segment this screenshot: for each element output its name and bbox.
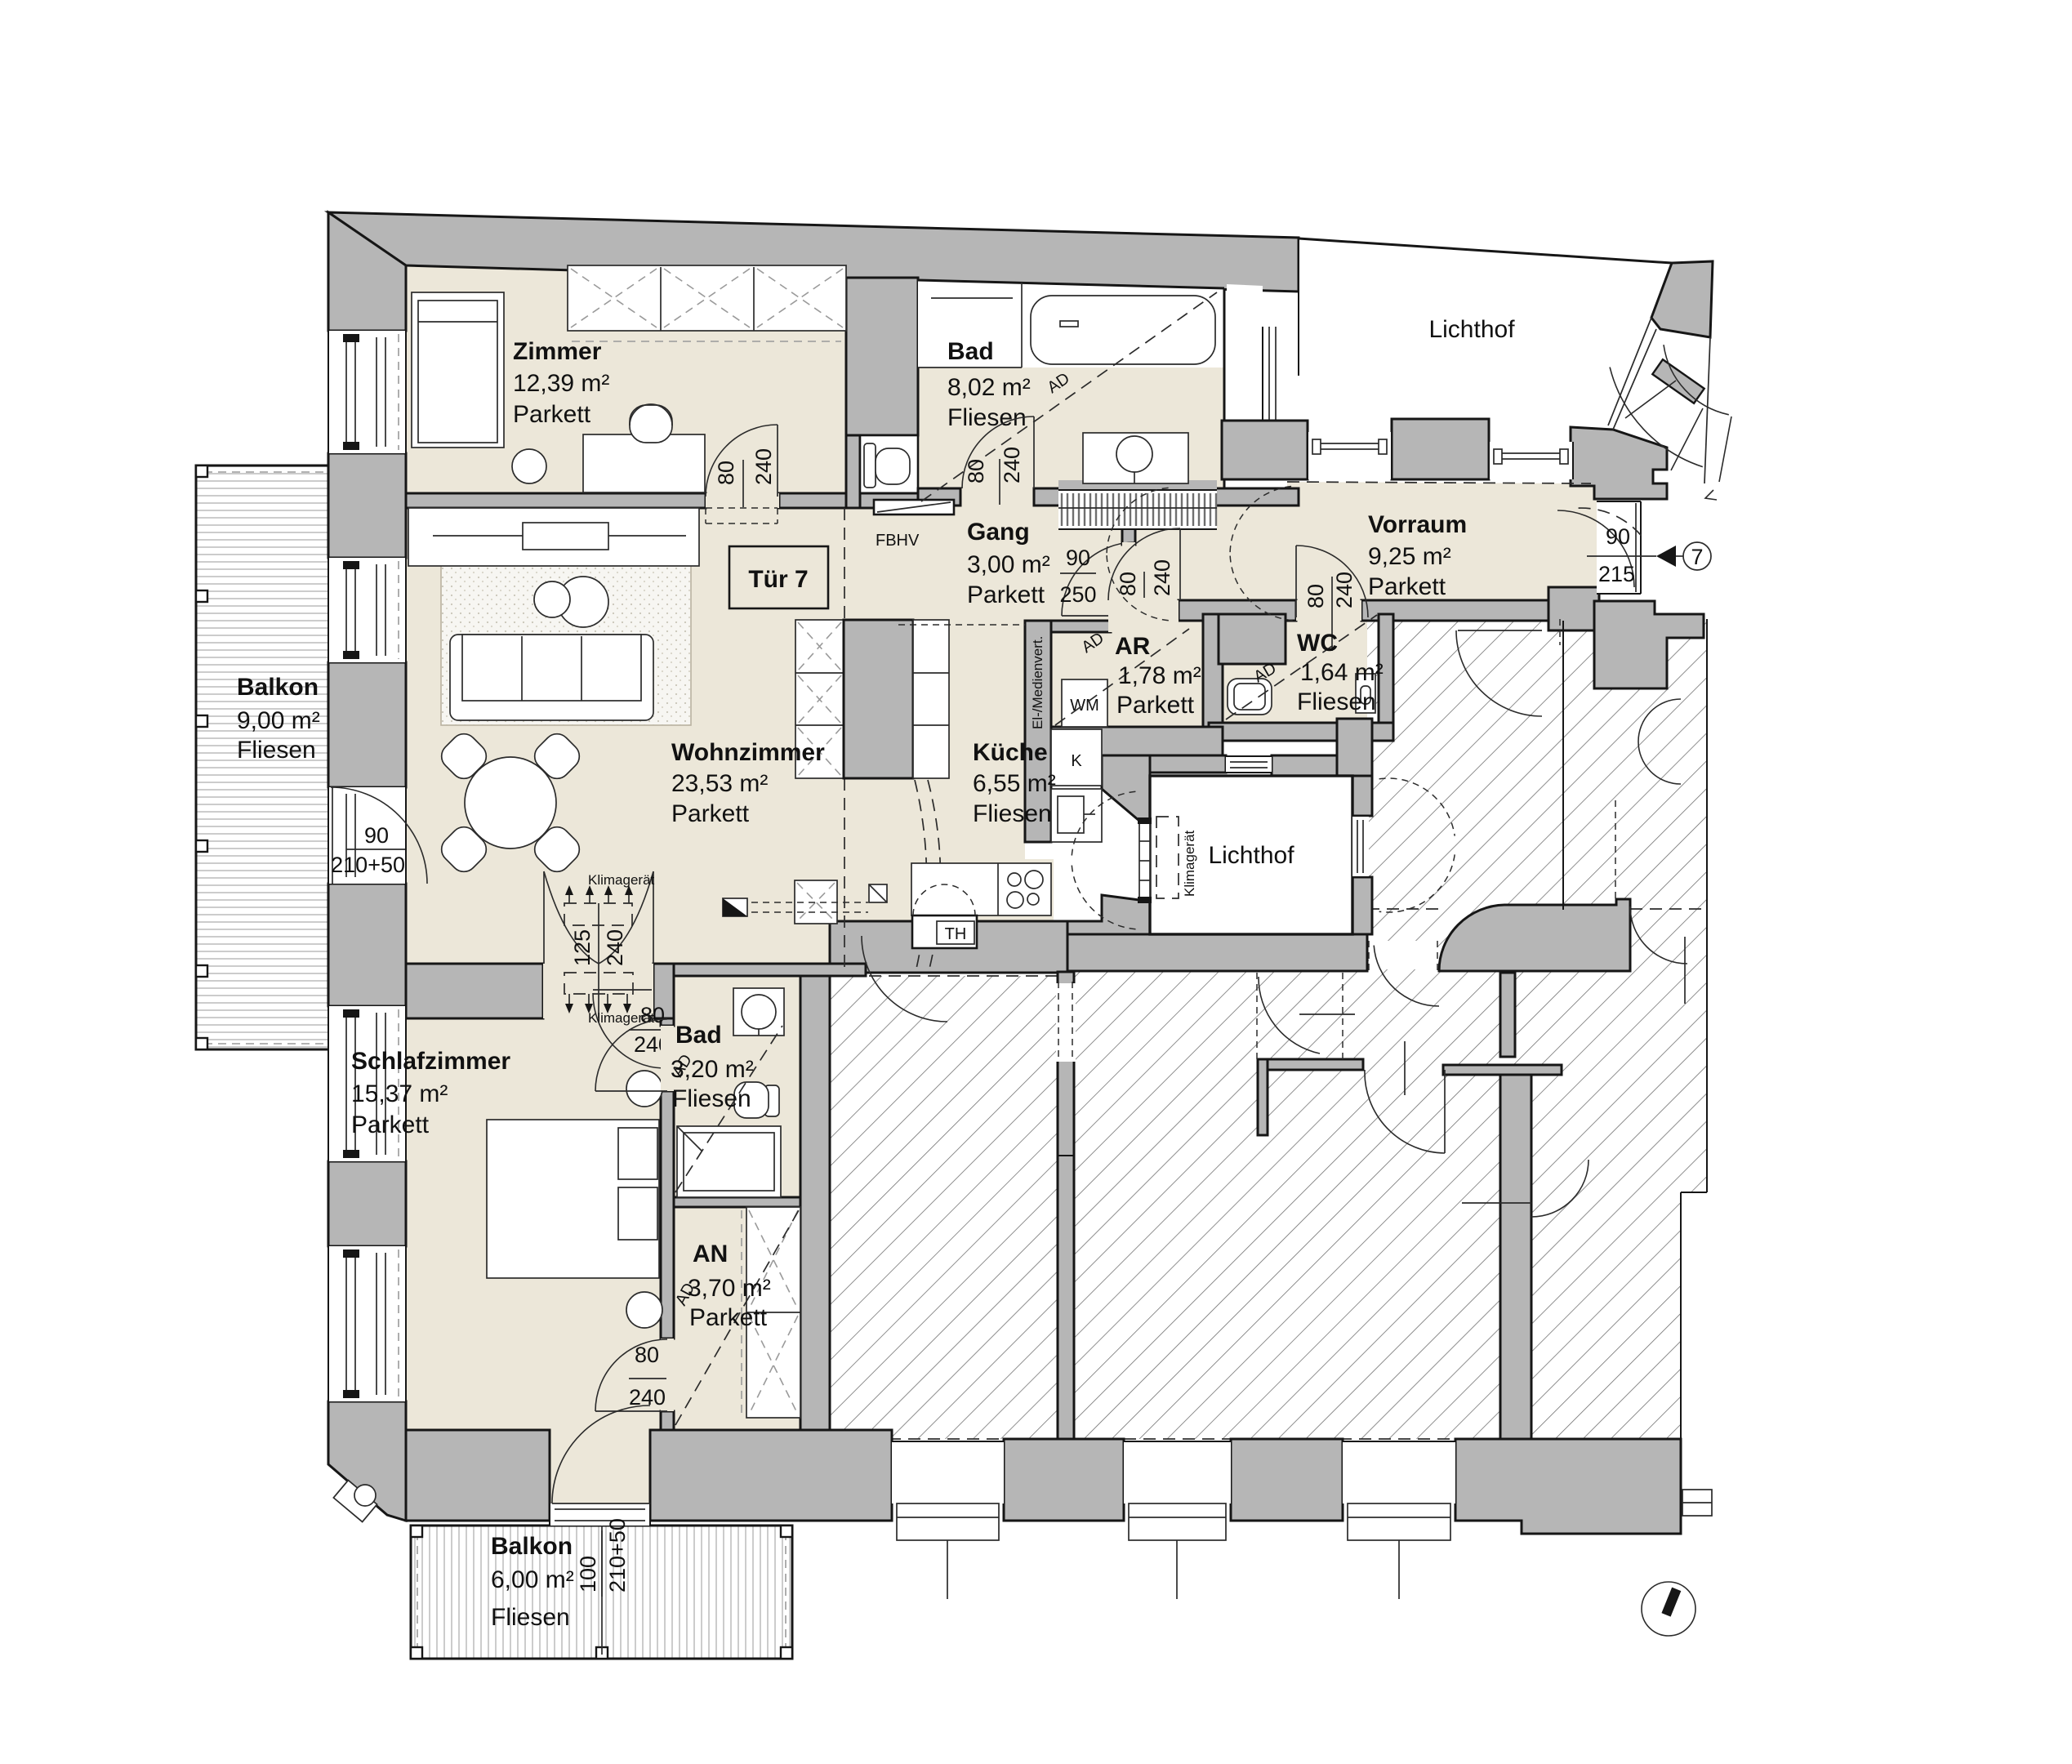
svg-text:Lichthof: Lichthof [1208, 842, 1294, 869]
svg-text:6,00 m²: 6,00 m² [491, 1566, 574, 1593]
svg-text:100: 100 [576, 1556, 600, 1592]
svg-text:Fliesen: Fliesen [491, 1604, 570, 1631]
svg-text:El-/Medienvert.: El-/Medienvert. [1030, 636, 1045, 729]
svg-text:1,78 m²: 1,78 m² [1118, 662, 1201, 689]
svg-text:9,25 m²: 9,25 m² [1368, 543, 1451, 570]
svg-text:Parkett: Parkett [967, 581, 1045, 608]
svg-text:1,64 m²: 1,64 m² [1300, 659, 1384, 686]
svg-text:Zimmer: Zimmer [513, 338, 602, 365]
svg-text:Vorraum: Vorraum [1368, 511, 1467, 538]
svg-text:TH: TH [945, 925, 967, 943]
svg-text:Fliesen: Fliesen [1297, 688, 1376, 715]
svg-text:Fliesen: Fliesen [672, 1085, 751, 1112]
svg-text:3,00 m²: 3,00 m² [967, 551, 1050, 578]
svg-text:15,37 m²: 15,37 m² [351, 1080, 448, 1107]
svg-text:3,20 m²: 3,20 m² [671, 1056, 754, 1083]
svg-text:Parkett: Parkett [1368, 573, 1446, 600]
svg-text:Parkett: Parkett [1116, 692, 1195, 719]
svg-text:90: 90 [1606, 524, 1630, 549]
svg-text:Lichthof: Lichthof [1428, 316, 1515, 343]
svg-text:Bad: Bad [675, 1022, 722, 1049]
svg-text:AN: AN [693, 1241, 728, 1267]
svg-text:90: 90 [364, 823, 389, 848]
svg-text:240: 240 [603, 929, 627, 966]
svg-text:Tür 7: Tür 7 [748, 566, 808, 593]
svg-text:Parkett: Parkett [513, 401, 591, 428]
svg-text:Küche: Küche [973, 739, 1048, 766]
svg-text:240: 240 [1150, 559, 1174, 596]
svg-text:8,02 m²: 8,02 m² [947, 374, 1031, 401]
svg-text:Wohnzimmer: Wohnzimmer [671, 739, 825, 766]
svg-text:80: 80 [714, 461, 738, 485]
svg-text:3,70 m²: 3,70 m² [688, 1275, 771, 1302]
svg-text:240: 240 [1000, 447, 1024, 483]
svg-text:23,53 m²: 23,53 m² [671, 770, 768, 797]
svg-text:240: 240 [751, 448, 776, 485]
svg-text:K: K [1071, 752, 1082, 770]
svg-text:FBHV: FBHV [876, 532, 920, 550]
svg-text:210+50: 210+50 [331, 853, 405, 877]
svg-text:80: 80 [635, 1343, 659, 1367]
svg-text:215: 215 [1598, 562, 1635, 586]
svg-text:12,39 m²: 12,39 m² [513, 370, 609, 397]
svg-text:Fliesen: Fliesen [237, 737, 316, 764]
svg-text:125: 125 [570, 929, 595, 966]
svg-text:240: 240 [629, 1385, 666, 1410]
svg-text:Balkon: Balkon [237, 674, 319, 701]
svg-text:7: 7 [1691, 545, 1703, 569]
svg-text:210+50: 210+50 [605, 1518, 630, 1592]
svg-text:Klimagerät: Klimagerät [1182, 830, 1197, 897]
svg-text:WC: WC [1297, 630, 1338, 657]
svg-text:80: 80 [964, 459, 988, 483]
svg-text:Bad: Bad [947, 338, 994, 365]
svg-text:240: 240 [1332, 572, 1357, 608]
svg-text:Parkett: Parkett [351, 1111, 430, 1138]
svg-text:Parkett: Parkett [671, 800, 750, 827]
svg-text:Gang: Gang [967, 519, 1030, 546]
svg-text:90: 90 [1066, 546, 1090, 570]
svg-text:Fliesen: Fliesen [973, 800, 1052, 827]
svg-text:Klimagerät: Klimagerät [588, 872, 655, 888]
svg-text:250: 250 [1059, 582, 1096, 607]
svg-text:80: 80 [1303, 584, 1328, 608]
svg-text:Parkett: Parkett [689, 1304, 768, 1331]
svg-text:AR: AR [1115, 633, 1151, 660]
svg-text:Balkon: Balkon [491, 1533, 573, 1560]
svg-text:Fliesen: Fliesen [947, 404, 1027, 431]
svg-text:6,55 m²: 6,55 m² [973, 770, 1056, 797]
svg-text:Schlafzimmer: Schlafzimmer [351, 1048, 510, 1075]
svg-text:9,00 m²: 9,00 m² [237, 707, 320, 734]
